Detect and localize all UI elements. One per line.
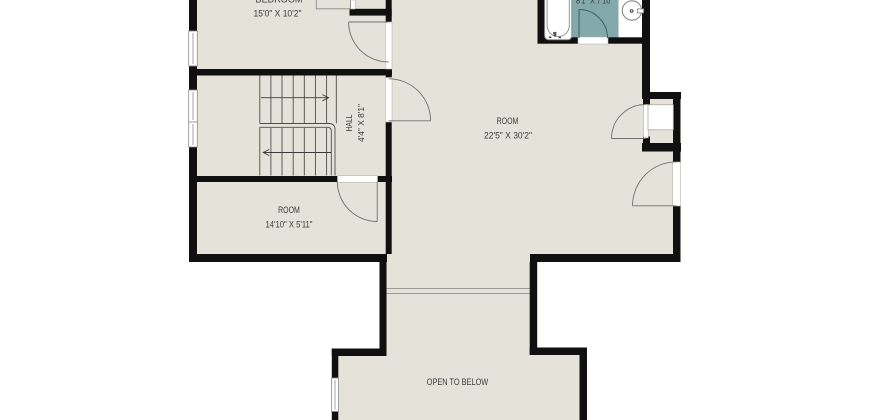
svg-text:ROOM: ROOM — [497, 115, 519, 126]
svg-text:OPEN TO BELOW: OPEN TO BELOW — [427, 376, 489, 387]
svg-text:ROOM: ROOM — [278, 204, 300, 215]
svg-text:14'10" X 5'11": 14'10" X 5'11" — [266, 219, 313, 230]
svg-text:15'0" X 10'2": 15'0" X 10'2" — [254, 7, 302, 18]
svg-text:8'1" X 7'10": 8'1" X 7'10" — [576, 0, 613, 5]
svg-text:BEDROOM: BEDROOM — [256, 0, 303, 5]
svg-text:HALL: HALL — [345, 114, 354, 131]
svg-text:4'4" X 8'1": 4'4" X 8'1" — [357, 104, 366, 142]
svg-text:22'5" X 30'2": 22'5" X 30'2" — [484, 129, 532, 140]
